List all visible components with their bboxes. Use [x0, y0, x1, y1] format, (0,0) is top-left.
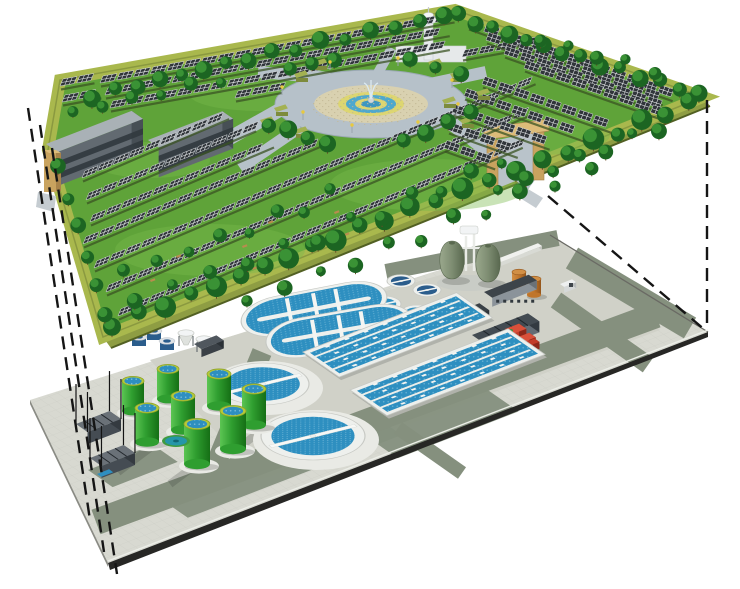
tree-crown-highlight — [168, 280, 174, 286]
thickener-scaled — [387, 275, 415, 288]
tree-crown-highlight — [241, 258, 249, 266]
tree-crown-highlight — [242, 296, 249, 303]
tree-crown-highlight — [376, 212, 385, 221]
planter-side — [276, 112, 288, 116]
egg-digester — [440, 241, 464, 279]
tree-crown-highlight — [245, 229, 251, 235]
tree-crown-highlight — [290, 45, 298, 53]
planter-side — [478, 96, 490, 100]
tree-crown-highlight — [401, 197, 413, 209]
tree-crown-highlight — [468, 17, 478, 27]
tree-crown-highlight — [204, 266, 212, 274]
tree — [383, 236, 395, 249]
tree-crown-highlight — [284, 63, 292, 71]
tree-crown-highlight — [389, 21, 398, 30]
tree-crown-highlight — [262, 119, 271, 128]
planter-side — [296, 78, 308, 82]
lamp-light — [328, 60, 331, 63]
tree — [651, 123, 667, 140]
tank-water-texture — [174, 392, 193, 400]
tree-crown-highlight — [185, 287, 193, 295]
tree-crown-highlight — [584, 129, 597, 142]
tree-crown-highlight — [51, 159, 60, 168]
tree-crown-highlight — [590, 51, 598, 59]
tree-crown-highlight — [176, 69, 183, 76]
tree-crown-highlight — [621, 55, 627, 61]
tree-crown-highlight — [436, 187, 443, 194]
tree-crown-highlight — [574, 149, 582, 157]
tree-crown-highlight — [349, 258, 358, 267]
tree — [547, 166, 559, 179]
tree — [549, 181, 560, 193]
rendering-stage — [0, 0, 740, 589]
tree-crown-highlight — [429, 194, 438, 203]
planter-side — [444, 104, 456, 108]
tree-crown-highlight — [632, 71, 642, 81]
tree-crown-highlight — [501, 27, 512, 38]
covered-tank — [159, 338, 175, 350]
tree-crown-highlight — [90, 279, 98, 287]
lamp-light — [456, 102, 459, 105]
tree-crown-highlight — [280, 121, 291, 132]
tree-crown-highlight — [564, 41, 570, 47]
thickener-hub — [425, 289, 429, 291]
tree-crown-highlight — [68, 107, 75, 114]
covered-tank-hatch — [163, 339, 171, 342]
tree — [415, 235, 427, 248]
tank-water-texture — [124, 377, 141, 384]
tree-crown-highlight — [464, 105, 473, 114]
tree-crown-highlight — [346, 212, 352, 218]
lamp-light — [350, 123, 353, 126]
tree-crown-highlight — [406, 187, 414, 195]
tree-crown-highlight — [265, 44, 274, 53]
tank-water-texture — [187, 420, 207, 429]
planter-side — [462, 124, 474, 128]
tree-crown-highlight — [84, 91, 95, 102]
tree-crown-highlight — [185, 77, 193, 85]
tree-crown-highlight — [691, 85, 701, 95]
tree-crown-highlight — [257, 258, 267, 268]
tree-crown-highlight — [278, 281, 287, 290]
hopper-tank — [178, 330, 194, 346]
tree-crown-highlight — [649, 68, 657, 76]
lamp-light — [416, 120, 419, 123]
tree-crown-highlight — [63, 194, 70, 201]
tank-base — [135, 437, 159, 447]
tree-crown-highlight — [398, 134, 406, 142]
tree-crown-highlight — [403, 52, 412, 61]
building-window — [496, 300, 499, 303]
tree-crown-highlight — [534, 151, 545, 162]
tree-crown-highlight — [241, 54, 251, 64]
tree-crown-highlight — [279, 239, 285, 245]
egg-digester — [476, 244, 500, 282]
tree-crown-highlight — [548, 166, 555, 173]
tree — [598, 145, 613, 161]
tree-crown-highlight — [615, 62, 622, 69]
egg-digester-cap — [449, 241, 455, 244]
sludge-thickener — [413, 284, 441, 297]
tree — [481, 210, 491, 221]
building-window — [517, 300, 520, 303]
tree-crown-highlight — [497, 159, 503, 165]
thickener-scaled — [413, 284, 441, 297]
tree-crown-highlight — [151, 255, 158, 262]
tree-crown-highlight — [441, 114, 450, 123]
building-window — [503, 300, 506, 303]
building-window — [524, 300, 527, 303]
tank-water-texture — [245, 385, 264, 393]
tree-crown-highlight — [633, 110, 646, 123]
tree-crown-highlight — [447, 209, 456, 218]
lamp-light — [280, 85, 283, 88]
tank-water-texture — [223, 407, 243, 416]
tree-crown-highlight — [535, 35, 543, 43]
tree — [585, 162, 598, 176]
tree-crown-highlight — [299, 207, 306, 214]
tree — [241, 295, 252, 307]
digester-pipe-platform — [460, 226, 478, 234]
lamp-light — [396, 56, 399, 59]
tree-crown-highlight — [418, 125, 428, 135]
tree — [446, 208, 461, 224]
tree-crown-highlight — [326, 230, 339, 243]
tree-crown-highlight — [599, 145, 608, 154]
tree-crown-highlight — [71, 218, 80, 227]
tank-water-texture — [159, 365, 176, 372]
tree-crown-highlight — [311, 235, 321, 245]
tree — [348, 258, 363, 274]
tree-crown-highlight — [316, 267, 322, 273]
tree-crown-highlight — [454, 67, 464, 77]
tree-crown-highlight — [234, 268, 244, 278]
tree-crown-highlight — [513, 184, 523, 194]
tree-crown-highlight — [301, 132, 309, 140]
hopper-top — [178, 330, 194, 336]
tree-crown-highlight — [674, 83, 683, 92]
tree-crown-highlight — [320, 136, 330, 146]
tree-crown-highlight — [279, 249, 291, 261]
tree-crown-highlight — [561, 146, 570, 155]
tree-crown-highlight — [384, 237, 391, 244]
tree-crown-highlight — [118, 264, 126, 272]
tank-water-texture — [138, 404, 157, 412]
truck-cab — [569, 283, 573, 287]
tank-base — [220, 444, 246, 454]
tree-crown-highlight — [98, 308, 107, 317]
tree-crown-highlight — [652, 124, 662, 134]
tree-crown-highlight — [363, 22, 373, 32]
tree-crown-highlight — [521, 35, 528, 42]
building-window — [510, 300, 513, 303]
clarifier-hub — [310, 435, 316, 438]
tree-crown-highlight — [430, 62, 437, 69]
tree-crown-highlight — [214, 229, 222, 237]
tree-crown-highlight — [156, 297, 169, 310]
tree-crown-highlight — [494, 185, 500, 191]
tree-crown-highlight — [586, 163, 594, 171]
tree-crown-highlight — [126, 91, 134, 99]
tree-crown-highlight — [482, 210, 488, 216]
tree-crown-highlight — [487, 21, 495, 29]
tank-base — [527, 292, 541, 298]
tree-crown-highlight — [452, 7, 461, 16]
tree-crown-highlight — [306, 57, 314, 65]
tree-crown-highlight — [184, 247, 190, 253]
tree-crown-highlight — [128, 294, 138, 304]
tree — [316, 266, 326, 277]
tank-top — [512, 269, 526, 275]
tree-crown-highlight — [271, 205, 279, 213]
tree-crown-highlight — [109, 82, 117, 90]
sludge-thickener — [387, 275, 415, 288]
circular-clarifier — [253, 410, 379, 470]
tree-crown-highlight — [658, 108, 668, 118]
tree-crown-highlight — [220, 57, 228, 65]
tree-crown-highlight — [196, 62, 207, 73]
tree-crown-highlight — [97, 101, 104, 108]
tree-crown-highlight — [507, 162, 519, 174]
tree-crown-highlight — [628, 129, 634, 135]
tree-crown-highlight — [131, 80, 140, 89]
tree-crown-highlight — [416, 236, 423, 243]
scene-svg — [0, 0, 740, 589]
clarifier-scaled — [261, 412, 365, 460]
tree-crown-highlight — [436, 8, 446, 18]
tree-crown-highlight — [483, 174, 492, 183]
thickener-hub — [399, 280, 403, 282]
tree-crown-highlight — [612, 128, 620, 136]
tree-crown-highlight — [153, 72, 163, 82]
tree-crown-highlight — [555, 47, 564, 56]
egg-digester-cap — [485, 244, 491, 247]
tree-crown-highlight — [519, 171, 528, 180]
tree-crown-highlight — [453, 178, 466, 191]
tree-crown-highlight — [157, 91, 163, 97]
lamp-light — [301, 110, 304, 113]
tree-crown-highlight — [464, 164, 473, 173]
pool-drain — [173, 440, 179, 443]
tree-crown-highlight — [340, 34, 347, 41]
building-window — [531, 300, 534, 303]
lamp-light — [450, 78, 453, 81]
tree-crown-highlight — [217, 78, 223, 84]
tank-base — [184, 459, 210, 469]
tree-crown-highlight — [325, 184, 332, 191]
small-pool — [162, 435, 190, 447]
tree-crown-highlight — [550, 181, 557, 188]
tree-crown-highlight — [414, 15, 422, 23]
tree-crown-highlight — [312, 32, 323, 43]
tree-crown-highlight — [82, 251, 90, 259]
tree-crown-highlight — [575, 50, 583, 58]
tank-water-texture — [210, 370, 229, 378]
